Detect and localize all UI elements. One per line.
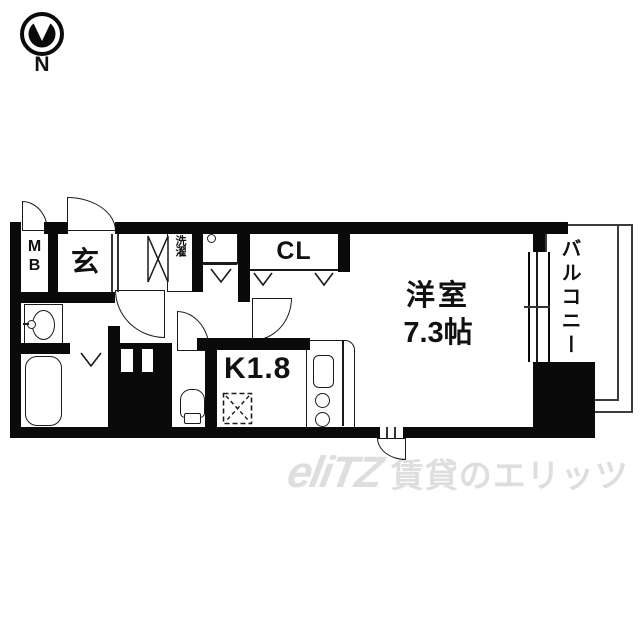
wall (44, 222, 68, 234)
watermark-brand-text: 賃貸のエリッツ (391, 449, 629, 497)
kitchen-label: K1.8 (224, 352, 314, 388)
washroom-door-arc (115, 290, 165, 338)
entrance-door-arc (67, 197, 116, 231)
main-room-name: 洋室 (368, 278, 508, 315)
door-frame-tick (386, 427, 388, 438)
balcony-rail-line (617, 226, 619, 401)
closet-label: CL (250, 234, 338, 268)
faucet-line (23, 323, 29, 325)
wall (10, 427, 380, 438)
door-swing-icon (80, 352, 102, 368)
door-frame-tick (394, 427, 396, 438)
watermark-logo: eliTZ (284, 448, 386, 498)
meter-box-letter: B (21, 256, 48, 275)
compass-north-label: N (28, 52, 56, 78)
wall (338, 232, 350, 272)
meter-box-label: M B (21, 237, 48, 281)
counter-edge-line (342, 341, 344, 426)
wall (48, 234, 58, 294)
main-room-size: 7.3帖 (368, 315, 508, 352)
bifold-door-icon (147, 234, 169, 284)
door-swing-icon (253, 272, 273, 287)
faucet-icon (27, 320, 36, 329)
wall (10, 222, 21, 438)
wall (192, 226, 203, 292)
wall (533, 234, 545, 252)
refrigerator-space (222, 392, 253, 425)
wall (108, 326, 120, 427)
bathtub (25, 356, 62, 426)
pipe-space (121, 349, 133, 372)
main-room-label: 洋室 7.3帖 (368, 278, 508, 356)
stove-burner-icon (315, 393, 330, 408)
wall (21, 343, 70, 354)
wall (238, 226, 250, 302)
door-swing-icon (314, 272, 334, 287)
entrance-label: 玄 (58, 242, 112, 278)
compass-icon (18, 10, 66, 58)
kitchen-sink (313, 355, 334, 388)
pipe-space (142, 349, 153, 372)
wall (205, 347, 217, 427)
drain-icon (207, 234, 216, 243)
closet-front-line (250, 269, 338, 271)
door-swing-icon (210, 268, 232, 284)
meter-box-letter: M (21, 237, 48, 256)
balcony-label: バルコニー (556, 238, 584, 403)
laundry-label: 洗濯 (172, 235, 188, 285)
entrance-step-line (117, 234, 119, 292)
closet-front-line (203, 262, 237, 264)
window-tick (524, 306, 550, 308)
wall (403, 427, 545, 438)
main-room-door-arc (252, 298, 292, 341)
wall (21, 292, 115, 303)
watermark: eliTZ 賃貸のエリッツ (288, 448, 632, 508)
toilet-base (184, 413, 201, 424)
stove-burner-icon (315, 412, 330, 427)
